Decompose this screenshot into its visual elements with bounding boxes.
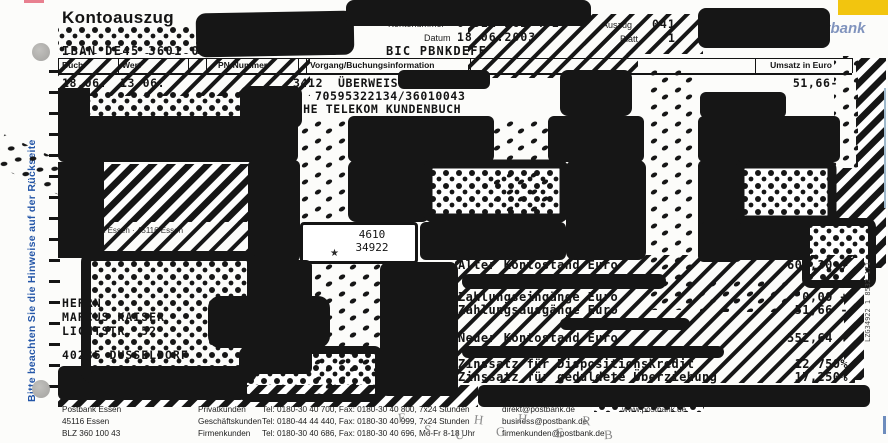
scan-mark-blue-edge: [884, 88, 886, 208]
pencil-letter: R: [581, 413, 591, 430]
summary-row-debits: Zahlungsausgänge Euro 51,66 -: [458, 303, 848, 317]
address-city: 40235 DUSSELDORF: [62, 348, 189, 362]
txn-reference: 70595322134/36010043: [315, 89, 465, 103]
auszug-value: 041: [652, 17, 676, 31]
bank-statement-scan: Bitte beachten Sie die Hinweise auf der …: [0, 0, 888, 443]
summary-label: Neuer Kontostand Euro: [458, 331, 618, 345]
txn-wert-date: 13.06.: [120, 76, 165, 90]
summary-value: 12,750%: [795, 357, 848, 371]
bic-value: BIC PBNKDEFF: [386, 44, 487, 58]
col-header-buch: Buch.: [62, 60, 86, 70]
summary-row-old-balance: Alter Kontostand Euro 604,30 +: [458, 258, 848, 272]
stamp-line2: 34922: [329, 241, 415, 254]
summary-label: Alter Kontostand Euro: [458, 258, 618, 272]
stamp-box: 4610 34922: [300, 222, 418, 264]
txn-pn-number: 3412: [293, 76, 323, 90]
footer-contact-corporate: Tel: 0180-30 40 686, Fax: 0180-30 40 696…: [262, 429, 475, 438]
footer-contact-private: Tel: 0180-30 40 700, Fax: 0180-30 40 800…: [262, 405, 470, 414]
summary-value: 0,00 +: [802, 290, 848, 304]
pencil-letter: B: [604, 427, 613, 443]
summary-value: 17,250%: [795, 370, 848, 384]
pencil-letter: C: [495, 424, 505, 441]
kontonummer-label: Kontonummer: [388, 19, 445, 29]
postbank-logo-text: Postbank: [798, 20, 866, 37]
footer-bank-blz: BLZ 360 100 43: [62, 429, 120, 438]
scan-mark-blue-corner: [883, 416, 886, 434]
txn-counterparty: DEUTSCHE TELEKOM KUNDENBUCH: [258, 102, 461, 116]
kontonummer-value: 0 311 262 432: [457, 16, 560, 30]
table-top-border: [58, 58, 852, 60]
table-col-line: [58, 58, 59, 73]
table-col-line: [852, 58, 853, 73]
summary-value: 604,30 +: [787, 258, 848, 272]
table-col-line: [206, 58, 207, 73]
pencil-letter: U: [454, 427, 464, 443]
margin-tick-marks: [49, 70, 60, 404]
summary-row-credits: Zahlungseingänge Euro 0,00 +: [458, 290, 848, 304]
scan-mark-pink: [24, 0, 44, 3]
footer-email-business: business@postbank.de: [502, 417, 587, 426]
summary-value: 552,64 +: [787, 331, 848, 345]
punch-hole-top: [32, 43, 50, 61]
pencil-letter: H: [517, 411, 527, 428]
footer-email-corporate: firmenkunden@postbank.de: [502, 429, 605, 438]
handwritten-star: ★: [330, 248, 339, 259]
col-header-umsatz: Umsatz in Euro: [740, 60, 832, 70]
table-col-line: [298, 58, 299, 73]
auszug-label: Auszug: [602, 20, 632, 30]
postbank-logo-yellow-bar: [838, 0, 888, 15]
footer-bank-city: 45116 Essen: [62, 417, 109, 426]
datum-label: Datum: [424, 33, 451, 43]
left-margin-notice: Bitte beachten Sie die Hinweise auf der …: [26, 96, 38, 402]
footer-segment-corporate: Firmenkunden: [198, 429, 250, 438]
summary-row-overdraft-rate: Zinssatz für Dispositionskredit 12,750%: [458, 357, 848, 371]
table-col-line: [306, 58, 307, 73]
pencil-letter: E: [397, 410, 407, 427]
footer-email-private: direkt@postbank.de: [502, 405, 575, 414]
txn-type: ÜBERWEISUNG: [338, 76, 421, 90]
blatt-value: 1: [668, 31, 676, 45]
sender-line: Postbank Essen · 45116 Essen: [72, 226, 183, 235]
summary-row-tolerated-rate: Zinssatz für geduldete Überziehung 17,25…: [458, 370, 848, 384]
col-header-pn: PN-Nummer: [218, 60, 267, 70]
print-code: LZG34922 1 8532 171: [864, 182, 872, 342]
footer-segment-business: Geschäftskunden: [198, 417, 262, 426]
summary-label: Zinssatz für Dispositionskredit: [458, 357, 694, 371]
summary-row-new-balance: Neuer Kontostand Euro 552,64 +: [458, 331, 848, 345]
address-salutation: HERRN: [62, 296, 102, 310]
summary-label: Zahlungseingänge Euro: [458, 290, 618, 304]
table-col-line: [118, 58, 119, 73]
footer-segment-private: Privatkunden: [198, 405, 246, 414]
table-header-border: [58, 73, 852, 75]
iban-line: IBAN DE45 3601 0043 0311 2624 32: [62, 44, 338, 58]
page-title: Kontoauszug: [62, 8, 174, 28]
table-col-line: [470, 58, 471, 73]
summary-label: Zinssatz für geduldete Überziehung: [458, 370, 717, 384]
blatt-label: Blatt: [620, 34, 638, 44]
stamp-line1: 4610: [329, 228, 415, 241]
footer-website: www.postbank.de: [622, 405, 686, 414]
footer-contact-business: Tel: 0180-44 44 440, Fax: 0180-30 40 999…: [262, 417, 470, 426]
summary-label: Zahlungsausgänge Euro: [458, 303, 618, 317]
summary-value: 51,66 -: [795, 303, 848, 317]
address-street: LICHTSTR. 52: [62, 324, 157, 338]
table-col-line: [188, 58, 189, 73]
pencil-letter: E: [555, 425, 565, 442]
footer-bank-name: Postbank Essen: [62, 405, 121, 414]
punch-hole-bottom: [32, 380, 50, 398]
col-header-wert: Wert: [122, 60, 141, 70]
pencil-letter: S: [423, 422, 432, 439]
address-name: MARCUS KAISER: [62, 310, 165, 324]
txn-buch-date: 18.06.: [62, 76, 107, 90]
col-header-vorgang: Vorgang/Buchungsinformation: [310, 60, 435, 70]
txn-amount: 51,66-: [758, 76, 838, 90]
pencil-letter: H: [473, 411, 484, 428]
datum-value: 18.06.2003: [457, 30, 536, 44]
